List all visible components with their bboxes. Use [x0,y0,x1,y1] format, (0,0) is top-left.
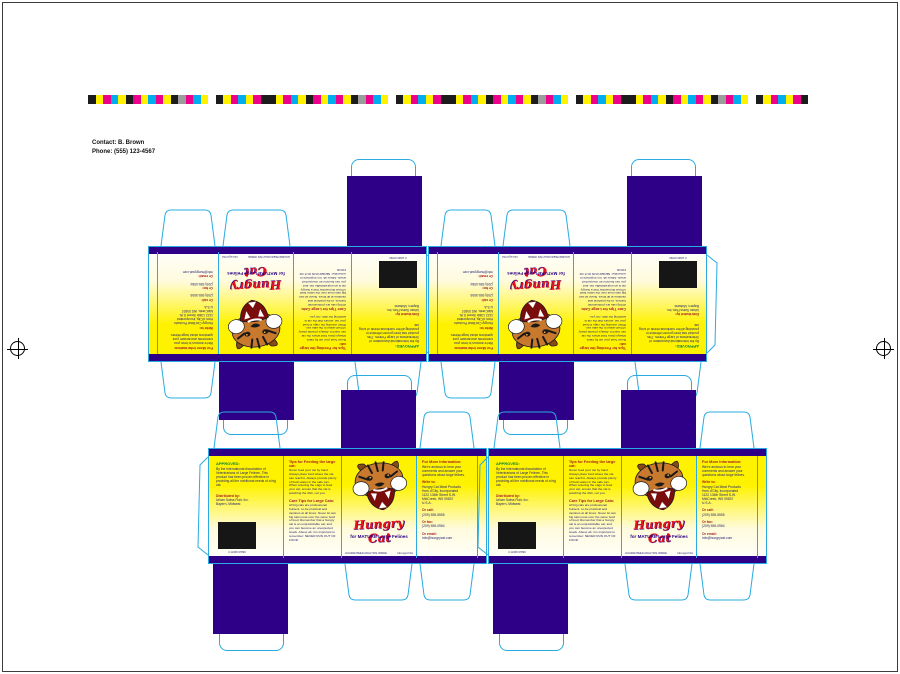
approved-heading: APPROVED: [637,344,699,349]
info-body: We're anxious to hear your comments and … [162,333,213,345]
top-flap-outline [698,410,756,448]
barcode-placeholder [659,261,697,288]
distributor-line: Urban Swiss Flair, Inc. [357,308,419,312]
box-bottom-panel [493,564,568,634]
tips-heading: Tips for Feeding the large cat: [569,460,617,468]
tips-body: Never feed your cat by hand. Always plac… [578,314,626,341]
barcode-caption: 0 12345 67890 [659,256,697,259]
bottom-flap-outline [418,564,476,602]
care-tips-heading: Care Tips for Large Cats: [578,307,626,311]
footnote-left: GUARANTEED ANALYSIS INSIDE [528,255,570,258]
fax-heading: Or fax: [162,286,213,290]
footnote-right: Net wgt 2 lbs [677,552,693,555]
footnote-left: GUARANTEED ANALYSIS INSIDE [248,255,290,258]
label-strip: APPROVED: By the International Associati… [488,448,767,564]
navy-edge-band [429,354,706,361]
approved-body: By the International Association of Vete… [357,322,419,343]
top-flap-outline [212,410,282,448]
tuck-flap-outline [631,159,696,176]
box-bottom-panel [213,564,288,634]
tips-body: Never feed your cat by hand. Always plac… [569,469,617,496]
barcode-placeholder [379,261,417,288]
top-flap-outline [418,410,476,448]
distributed-heading: Distributed by: [637,312,699,316]
approved-heading: APPROVED: [216,461,278,466]
contact-phone: Phone: (555) 123-4567 [92,148,155,157]
barcode-caption: 0 12345 67890 [498,551,536,554]
tiger-illustration [629,458,691,516]
care-tips-body: All big cats are professional hunters, s… [569,504,617,543]
label-strip: APPROVED: By the International Associati… [428,246,707,362]
brand-wordmark: Hungry Cat [342,515,417,547]
info-heading: For More Information: [162,346,213,350]
box-dieline: APPROVED: By the International Associati… [476,372,767,652]
tips-heading: Tips for Feeding the large cat: [298,342,346,350]
brand-panel: Hungry Cat for MATURE Large Felines GUAR… [622,456,697,558]
cmyk-calibration-bar [88,95,808,104]
write-heading: Write to: [422,480,473,484]
write-heading: Write to: [442,326,493,330]
call-heading: Or call: [162,298,213,302]
info-body: We're anxious to hear your comments and … [422,465,473,477]
brand-tagline: for MATURE Large Felines [499,271,573,276]
info-panel: For More Information: We're anxious to h… [157,252,218,354]
mail-address: Hungry Cat Meat ProductsHors d'City, Inc… [702,485,753,506]
care-tips-body: All big cats are professional hunters, s… [578,267,626,306]
phone-number: (209) 555-5555 [422,513,473,517]
tips-heading: Tips for Feeding the large cat: [578,342,626,350]
brand-panel: Hungry Cat for MATURE Large Felines GUAR… [342,456,417,558]
write-heading: Write to: [702,480,753,484]
distributor-line: Bayern, Midwest [216,502,278,506]
fax-number: (209) 555-0984 [422,524,473,528]
glue-flap [758,456,768,558]
call-heading: Or call: [702,508,753,512]
brand-tagline: for MATURE Large Felines [622,534,696,539]
phone-number: (209) 555-5555 [442,293,493,297]
tips-body: Never feed your cat by hand. Always plac… [298,314,346,341]
care-tips-heading: Care Tips for Large Cats: [298,307,346,311]
brand-panel: Hungry Cat for MATURE Large Felines GUAR… [218,252,293,354]
care-tips-body: All big cats are professional hunters, s… [298,267,346,306]
brand-wordmark: Hungry Cat [218,263,293,295]
brand-wordmark: Hungry Cat [498,263,573,295]
approved-heading: APPROVED: [357,344,419,349]
tuck-flap-outline [351,159,416,176]
distributed-heading: Distributed by: [357,312,419,316]
brand-tagline: for MATURE Large Felines [342,534,416,539]
email-address: info@hungrycat.com [442,270,493,274]
footnote-right: Net wgt 2 lbs [397,552,413,555]
email-address: info@hungrycat.com [702,536,753,540]
brand-tagline: for MATURE Large Felines [219,271,293,276]
fax-heading: Or fax: [422,520,473,524]
info-heading: For More Information: [422,460,473,464]
tips-panel: Tips for Feeding the large cat: Never fe… [573,252,631,354]
tips-panel: Tips for Feeding the large cat: Never fe… [564,456,622,558]
box-bottom-panel [627,176,702,246]
tips-panel: Tips for Feeding the large cat: Never fe… [293,252,351,354]
info-panel: For More Information: We're anxious to h… [437,252,498,354]
approved-body: By the International Association of Vete… [216,467,278,488]
email-heading: Or email: [702,532,753,536]
glue-flap [427,252,437,354]
info-body: We're anxious to hear your comments and … [442,333,493,345]
fax-heading: Or fax: [442,286,493,290]
registration-mark-right [876,341,891,356]
tiger-illustration [504,294,566,352]
fax-number: (209) 555-0984 [702,524,753,528]
barcode-caption: 0 12345 67890 [379,256,417,259]
mail-address: Hungry Cat Meat ProductsHors d'City, Inc… [422,485,473,506]
email-heading: Or email: [422,532,473,536]
email-heading: Or email: [162,274,213,278]
info-body: We're anxious to hear your comments and … [702,465,753,477]
label-strip: APPROVED: By the International Associati… [208,448,487,564]
bottom-flap-outline [698,564,756,602]
tuck-flap-outline [219,634,284,651]
info-panel: For More Information: We're anxious to h… [417,456,478,558]
phone-number: (209) 555-5555 [162,293,213,297]
box-top-panel [341,390,416,448]
email-heading: Or email: [442,274,493,278]
tiger-illustration [349,458,411,516]
footnote-left: GUARANTEED ANALYSIS INSIDE [345,552,387,555]
footnote-left: GUARANTEED ANALYSIS INSIDE [625,552,667,555]
registration-mark-left [10,341,25,356]
write-heading: Write to: [162,326,213,330]
navy-edge-band [489,449,766,456]
navy-edge-band [149,354,426,361]
bottom-flap-outline [623,564,694,602]
bottom-flap-outline [501,208,572,246]
top-flap-outline [492,410,562,448]
fax-number: (209) 555-0984 [162,281,213,285]
info-panel: For More Information: We're anxious to h… [697,456,758,558]
fax-heading: Or fax: [702,520,753,524]
glue-flap [147,252,157,354]
bottom-flap-outline [159,208,217,246]
call-heading: Or call: [422,508,473,512]
approved-panel: APPROVED: By the International Associati… [631,252,706,354]
mail-address: Hungry Cat Meat ProductsHors d'City, Inc… [442,305,493,326]
bottom-flap-outline [343,564,414,602]
tips-heading: Tips for Feeding the large cat: [289,460,337,468]
box-bottom-panel [347,176,422,246]
approved-body: By the International Association of Vete… [637,322,699,343]
end-flap-outline [706,254,719,354]
email-address: info@hungrycat.com [162,270,213,274]
bottom-flap-outline [221,208,292,246]
info-heading: For More Information: [442,346,493,350]
approved-panel: APPROVED: By the International Associati… [351,252,426,354]
tuck-flap-outline [499,634,564,651]
contact-name: Contact: B. Brown [92,139,155,148]
distributor-line: Bayern, Midwest [496,502,558,506]
label-strip: APPROVED: By the International Associati… [148,246,427,362]
approved-heading: APPROVED: [496,461,558,466]
approved-panel: APPROVED: By the International Associati… [489,456,564,558]
distributed-heading: Distributed by: [496,494,558,498]
fax-number: (209) 555-0984 [442,281,493,285]
brand-wordmark: Hungry Cat [622,515,697,547]
tiger-illustration [224,294,286,352]
barcode-placeholder [498,522,536,549]
barcode-caption: 0 12345 67890 [218,551,256,554]
approved-panel: APPROVED: By the International Associati… [209,456,284,558]
contact-block: Contact: B. Brown Phone: (555) 123-4567 [92,139,155,157]
prepress-sheet: Contact: B. Brown Phone: (555) 123-4567 [0,0,900,674]
tips-panel: Tips for Feeding the large cat: Never fe… [284,456,342,558]
distributor-line: Urban Swiss Flair, Inc. [637,308,699,312]
footnote-right: Net wgt 2 lbs [222,255,238,258]
box-dieline: APPROVED: By the International Associati… [196,372,487,652]
email-address: info@hungrycat.com [422,536,473,540]
box-top-panel [621,390,696,448]
care-tips-body: All big cats are professional hunters, s… [289,504,337,543]
phone-number: (209) 555-5555 [702,513,753,517]
navy-edge-band [209,449,486,456]
call-heading: Or call: [442,298,493,302]
tips-body: Never feed your cat by hand. Always plac… [289,469,337,496]
barcode-placeholder [218,522,256,549]
approved-body: By the International Association of Vete… [496,467,558,488]
info-heading: For More Information: [702,460,753,464]
brand-panel: Hungry Cat for MATURE Large Felines GUAR… [498,252,573,354]
bottom-flap-outline [439,208,497,246]
distributed-heading: Distributed by: [216,494,278,498]
footnote-right: Net wgt 2 lbs [502,255,518,258]
mail-address: Hungry Cat Meat ProductsHors d'City, Inc… [162,305,213,326]
